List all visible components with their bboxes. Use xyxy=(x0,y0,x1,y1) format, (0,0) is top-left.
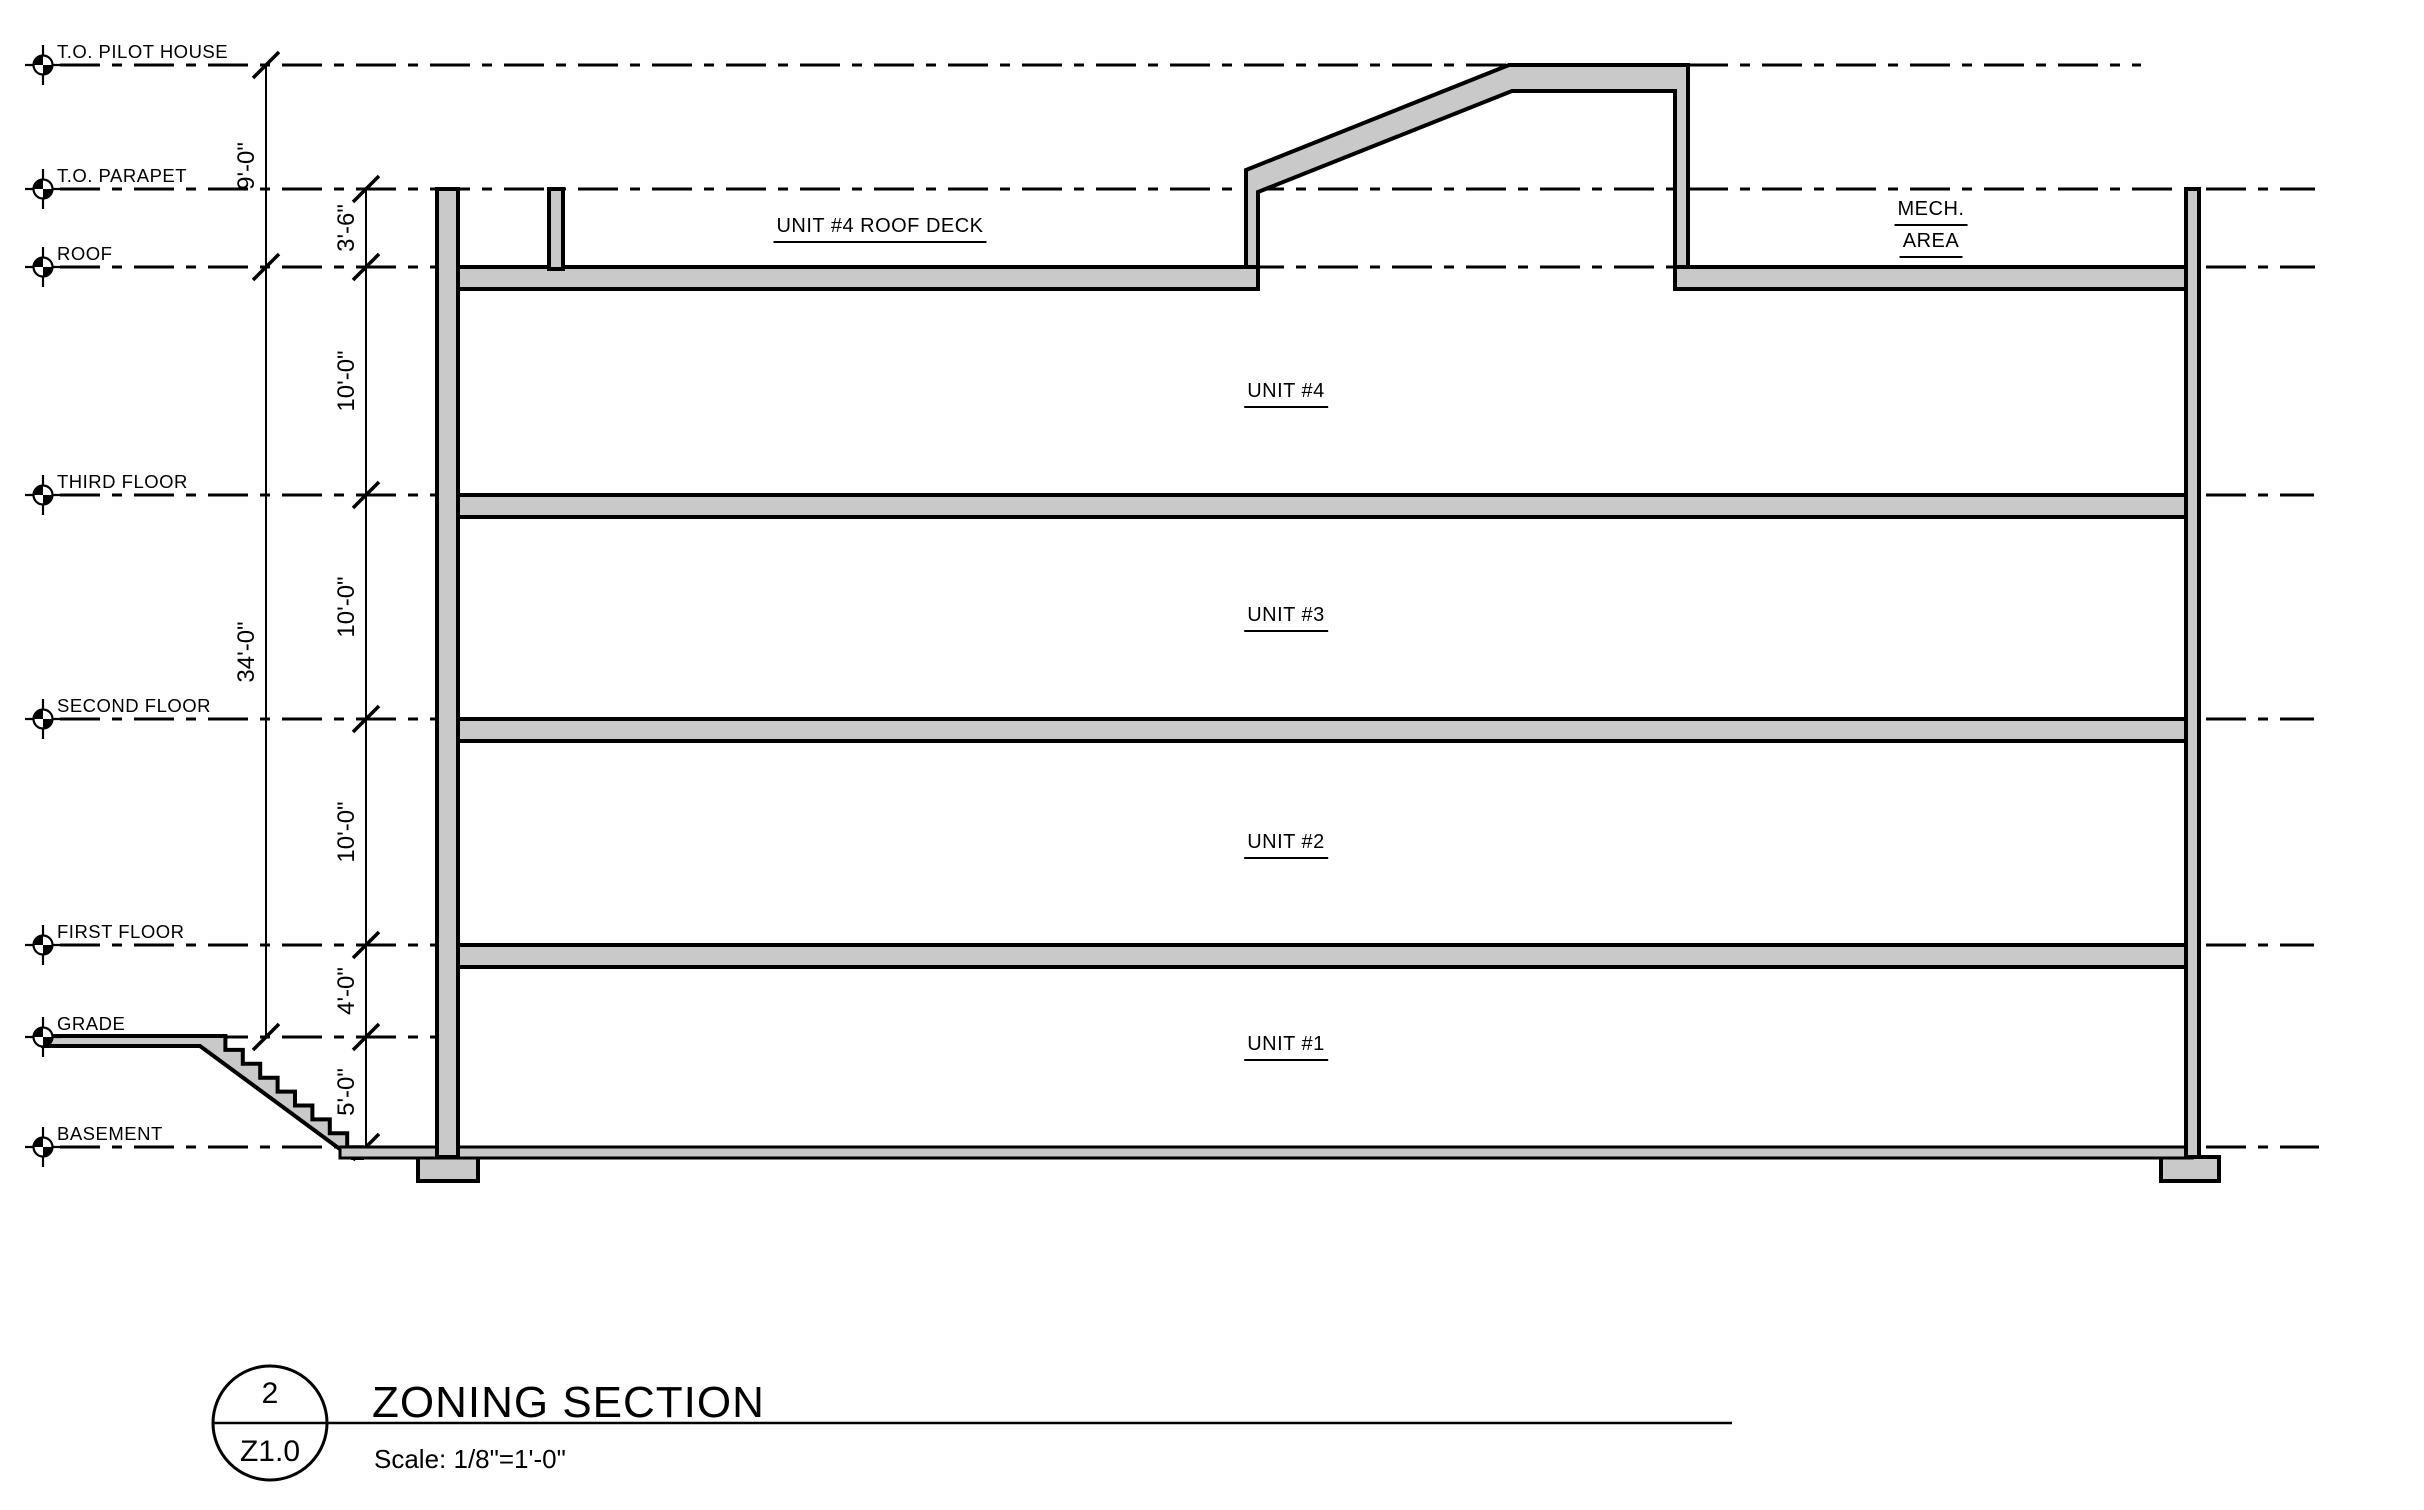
mech-floor-slab xyxy=(1675,267,2199,289)
datum-markers xyxy=(25,45,61,1167)
right-wall xyxy=(2186,189,2199,1157)
dimension-lines xyxy=(253,52,379,1160)
datum-pilot-house xyxy=(25,45,61,85)
section-linework xyxy=(0,0,2424,1510)
unit4-label: UNIT #4 xyxy=(1244,380,1328,408)
level-label-second: SECOND FLOOR xyxy=(57,695,211,717)
sheet-number: Z1.0 xyxy=(240,1435,300,1469)
footing-right xyxy=(2161,1157,2219,1181)
second-floor-slab xyxy=(446,719,2192,741)
level-lines xyxy=(60,65,2319,1147)
datum-grade xyxy=(25,1017,61,1057)
detail-number: 2 xyxy=(262,1377,279,1411)
left-wall xyxy=(437,189,458,1157)
dim-third-to-roof: 10'-0" xyxy=(334,311,360,451)
unit1-label: UNIT #1 xyxy=(1244,1033,1328,1061)
drawing-scale: Scale: 1/8"=1'-0" xyxy=(374,1444,566,1475)
dim-second-to-third: 10'-0" xyxy=(334,537,360,677)
mech-label-line2: AREA xyxy=(1900,230,1962,258)
basement-slab xyxy=(340,1147,2192,1158)
building-section xyxy=(43,65,2400,1181)
level-label-parapet: T.O. PARAPET xyxy=(57,165,187,187)
level-label-roof: ROOF xyxy=(57,243,112,265)
level-label-basement: BASEMENT xyxy=(57,1123,163,1145)
unit1-label-text: UNIT #1 xyxy=(1244,1033,1328,1061)
zoning-section-sheet: T.O. PILOT HOUSE T.O. PARAPET ROOF THIRD… xyxy=(0,0,2424,1510)
unit3-label-text: UNIT #3 xyxy=(1244,604,1328,632)
unit2-label-text: UNIT #2 xyxy=(1244,831,1328,859)
unit2-label: UNIT #2 xyxy=(1244,831,1328,859)
level-label-grade: GRADE xyxy=(57,1013,125,1035)
footing-left xyxy=(418,1157,478,1181)
level-label-pilot-house: T.O. PILOT HOUSE xyxy=(57,41,228,63)
datum-first xyxy=(25,925,61,965)
datum-parapet xyxy=(25,169,61,209)
datum-basement xyxy=(25,1127,61,1167)
level-label-first: FIRST FLOOR xyxy=(57,921,184,943)
dim-roof-to-pilot-house: 9'-0" xyxy=(234,96,260,236)
dim-first-to-second: 10'-0" xyxy=(334,762,360,902)
roof-deck-label-text: UNIT #4 ROOF DECK xyxy=(773,215,986,243)
datum-roof xyxy=(25,247,61,287)
datum-second xyxy=(25,699,61,739)
pilot-house xyxy=(1246,65,1688,270)
third-floor-slab xyxy=(446,495,2192,517)
datum-third xyxy=(25,475,61,515)
unit4-label-text: UNIT #4 xyxy=(1244,380,1328,408)
drawing-title: ZONING SECTION xyxy=(372,1378,765,1428)
mech-area-label: MECH. AREA xyxy=(1895,198,1968,258)
dim-ticks xyxy=(253,52,379,1160)
unit3-label: UNIT #3 xyxy=(1244,604,1328,632)
level-label-third: THIRD FLOOR xyxy=(57,471,188,493)
roof-deck-label: UNIT #4 ROOF DECK xyxy=(773,215,986,243)
first-floor-slab xyxy=(446,945,2192,967)
mech-label-line1: MECH. xyxy=(1895,198,1968,226)
dim-basement-to-grade: 5'-0" xyxy=(334,1022,360,1162)
roof-deck-parapet-stub xyxy=(549,189,563,269)
dim-roof-to-parapet: 3'-6" xyxy=(334,158,360,298)
dim-grade-to-roof: 34'-0" xyxy=(234,582,260,722)
